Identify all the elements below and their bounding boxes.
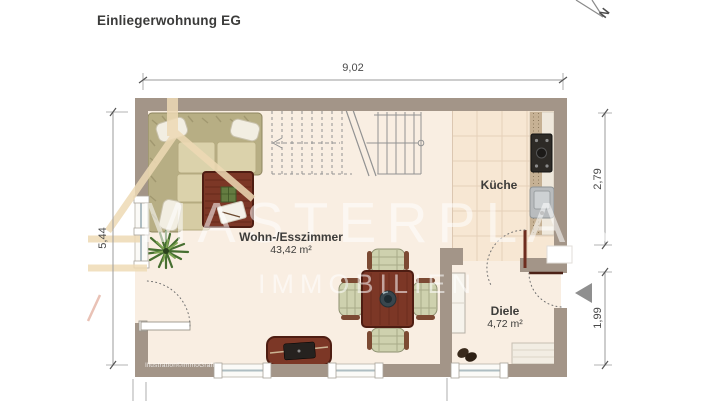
room-name-kitchen: Küche: [459, 178, 539, 192]
room-area-hall: 4,72 m²: [465, 318, 545, 331]
room-name-living: Wohn-/Esszimmer: [201, 230, 381, 244]
window: [328, 363, 383, 378]
dimension-right-upper: 2,79: [592, 157, 606, 201]
room-name-hall: Diele: [465, 304, 545, 318]
floorplan-page: MASTERPLAN IMMOBILIEN Einliegerwohnung E…: [0, 0, 720, 405]
watermark-accent: [88, 295, 100, 321]
window: [451, 363, 508, 378]
watermark-text-2: IMMOBILIEN: [258, 269, 473, 300]
room-label-living: Wohn-/Esszimmer 43,42 m²: [201, 230, 381, 257]
dimension-height-left: 5,44: [97, 216, 111, 260]
room-label-kitchen: Küche: [459, 178, 539, 192]
room-label-hall: Diele 4,72 m²: [465, 304, 545, 331]
sideboard-tv: [267, 337, 331, 365]
page-title: Einliegerwohnung EG: [97, 13, 241, 28]
entrance-arrow-icon: [575, 283, 592, 303]
illustration-credit: Illustration©ImmoGrafik: [145, 362, 218, 369]
room-area-living: 43,42 m²: [201, 244, 381, 257]
stove: [531, 134, 552, 172]
chair: [367, 328, 409, 352]
window: [214, 363, 271, 378]
dimension-right-lower: 1,99: [592, 296, 606, 340]
dimension-width-total: 9,02: [283, 62, 423, 74]
